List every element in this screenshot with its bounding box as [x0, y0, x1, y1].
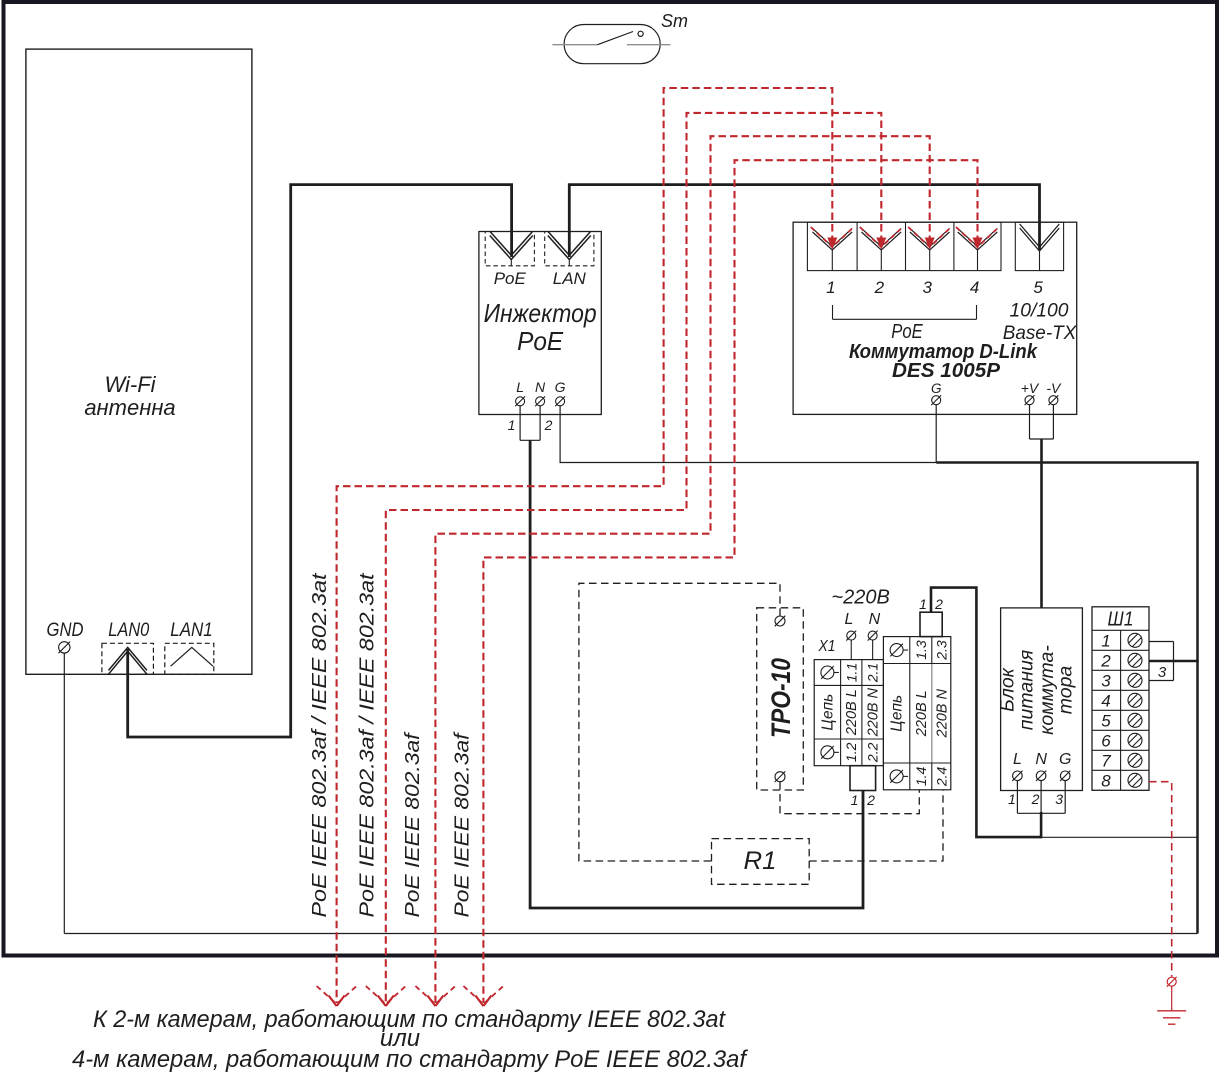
svg-text:PoE: PoE — [494, 269, 527, 288]
svg-text:220В L: 220В L — [914, 690, 930, 737]
svg-text:2: 2 — [544, 417, 553, 433]
svg-text:1.1: 1.1 — [843, 663, 859, 682]
svg-text:GND: GND — [47, 620, 84, 641]
svg-text:5: 5 — [1101, 712, 1111, 731]
svg-text:Инжектор: Инжектор — [484, 298, 597, 328]
svg-text:3: 3 — [922, 278, 932, 297]
svg-text:1: 1 — [508, 417, 516, 433]
svg-text:питания: питания — [1015, 649, 1037, 730]
svg-text:10/100: 10/100 — [1010, 300, 1069, 322]
svg-text:7: 7 — [1101, 752, 1111, 771]
svg-text:3: 3 — [1101, 672, 1111, 691]
svg-text:PoE IEEE 802.3af: PoE IEEE 802.3af — [450, 731, 473, 918]
svg-text:R1: R1 — [744, 847, 777, 875]
svg-text:1: 1 — [851, 792, 859, 808]
svg-text:3: 3 — [1158, 664, 1167, 681]
svg-text:+V: +V — [1021, 380, 1040, 396]
svg-text:2.3: 2.3 — [933, 640, 949, 661]
svg-text:ТРО-10: ТРО-10 — [766, 658, 796, 738]
svg-text:1: 1 — [826, 278, 835, 297]
svg-text:X1: X1 — [818, 638, 836, 655]
svg-text:PoE IEEE 802.3af / IEEE 802.3a: PoE IEEE 802.3af / IEEE 802.3at — [308, 572, 331, 917]
svg-text:4: 4 — [1101, 692, 1110, 711]
svg-text:2: 2 — [874, 278, 885, 297]
svg-text:220В L: 220В L — [844, 689, 860, 736]
svg-text:1.4: 1.4 — [913, 766, 929, 786]
svg-text:2: 2 — [1100, 652, 1111, 671]
svg-text:Ш1: Ш1 — [1108, 609, 1134, 631]
svg-text:Sm: Sm — [661, 11, 688, 31]
svg-text:-V: -V — [1046, 380, 1062, 396]
svg-text:антенна: антенна — [84, 395, 175, 420]
svg-text:2.2: 2.2 — [865, 742, 881, 763]
svg-text:1: 1 — [1101, 632, 1110, 651]
svg-text:4-м камерам, работающим по ста: 4-м камерам, работающим по стандарту PoE… — [72, 1046, 748, 1073]
svg-text:L: L — [844, 611, 853, 628]
svg-text:220В N: 220В N — [934, 689, 950, 739]
svg-text:N: N — [1035, 751, 1047, 768]
svg-text:1.3: 1.3 — [913, 640, 929, 660]
svg-text:2.4: 2.4 — [933, 766, 949, 787]
svg-text:4: 4 — [970, 278, 979, 297]
svg-text:G: G — [1059, 751, 1071, 768]
svg-text:DES 1005P: DES 1005P — [892, 360, 1001, 382]
svg-text:2: 2 — [1031, 791, 1040, 807]
svg-text:PoE IEEE 802.3af: PoE IEEE 802.3af — [401, 731, 424, 918]
svg-text:LAN0: LAN0 — [108, 620, 149, 641]
svg-text:2.1: 2.1 — [865, 663, 881, 683]
svg-text:~220В: ~220В — [831, 587, 889, 609]
svg-text:тора: тора — [1055, 666, 1077, 715]
svg-text:PoE IEEE 802.3af / IEEE 802.3a: PoE IEEE 802.3af / IEEE 802.3at — [356, 572, 379, 917]
svg-text:220В N: 220В N — [866, 687, 882, 737]
svg-text:1.2: 1.2 — [843, 742, 859, 762]
svg-text:PoE: PoE — [517, 326, 564, 356]
svg-text:3: 3 — [1055, 791, 1063, 807]
svg-text:2: 2 — [934, 596, 943, 612]
svg-text:G: G — [555, 379, 566, 395]
svg-text:G: G — [931, 381, 942, 396]
svg-text:N: N — [869, 611, 881, 628]
svg-text:Цепь: Цепь — [889, 695, 906, 732]
svg-text:L: L — [516, 379, 524, 395]
svg-text:6: 6 — [1101, 732, 1111, 751]
svg-text:Wi-Fi: Wi-Fi — [104, 372, 156, 397]
svg-text:1: 1 — [1008, 791, 1016, 807]
svg-text:2: 2 — [866, 792, 875, 808]
svg-text:LAN: LAN — [553, 269, 587, 288]
svg-text:Цепь: Цепь — [819, 694, 836, 731]
svg-text:5: 5 — [1033, 278, 1043, 297]
svg-text:8: 8 — [1101, 772, 1111, 791]
svg-text:L: L — [1013, 751, 1022, 768]
svg-text:1: 1 — [919, 596, 927, 612]
svg-text:LAN1: LAN1 — [170, 620, 213, 641]
svg-text:PoE: PoE — [891, 321, 923, 343]
svg-text:N: N — [535, 379, 546, 395]
